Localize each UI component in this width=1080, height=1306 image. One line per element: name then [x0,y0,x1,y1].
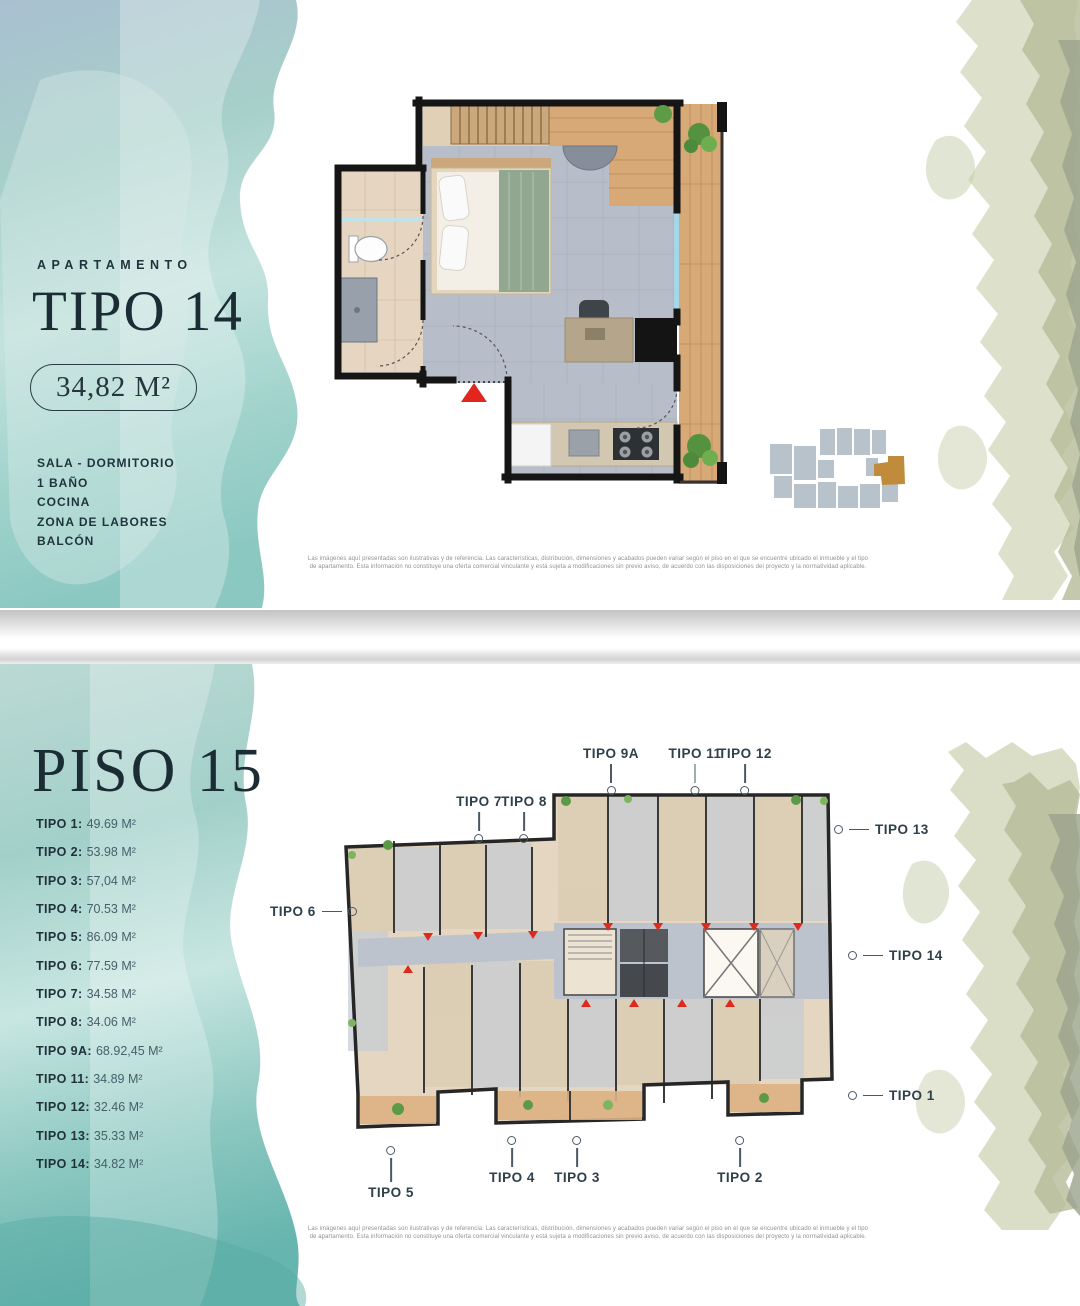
leader-dot-icon [386,1146,395,1155]
unit-area: 70.53 M² [87,902,136,916]
unit-area: 34.58 M² [87,987,136,1001]
list-item: TIPO 5:86.09 M² [36,930,163,958]
leader-dot-icon [474,834,483,843]
leader-line [576,1148,577,1167]
unit-label: TIPO 6: [36,959,83,973]
unit-area: 32.46 M² [94,1100,143,1114]
unit-area: 34.06 M² [87,1015,136,1029]
leader-line [694,764,695,783]
bed-icon [431,158,551,294]
list-item: TIPO 2:53.98 M² [36,845,163,873]
sink-icon [569,430,599,456]
leader-dot-icon [348,907,357,916]
locator-highlighted-unit [874,456,905,485]
plan-callout-tipo14: TIPO 14 [848,948,943,963]
glass-partition [337,218,421,221]
unit-label: TIPO 9A: [36,1044,92,1058]
list-item: TIPO 4:70.53 M² [36,902,163,930]
elevator-core [704,929,794,997]
leader-line [849,829,869,830]
unit-area-list: TIPO 1:49.69 M² TIPO 2:53.98 M² TIPO 3:5… [36,817,163,1185]
unit-label: TIPO 1: [36,817,83,831]
leader-dot-icon [606,786,615,795]
leader-dot-icon [691,786,700,795]
callout-label: TIPO 5 [368,1185,414,1200]
brochure-page: { "top_panel": { "eyebrow": "APARTAMENTO… [0,0,1080,1306]
callout-label: TIPO 2 [717,1170,763,1185]
unit-area: 53.98 M² [87,845,136,859]
panel1-title: TIPO 14 [32,283,244,340]
list-item: TIPO 14:34.82 M² [36,1157,163,1185]
unit-label: TIPO 4: [36,902,83,916]
plan-callout-tipo1: TIPO 1 [848,1088,935,1103]
callout-label: TIPO 14 [889,948,943,963]
leader-dot-icon [741,786,750,795]
unit-label: TIPO 8: [36,1015,83,1029]
leader-line [390,1158,391,1182]
leader-line [523,812,524,831]
unit-area: 68.92,45 M² [96,1044,163,1058]
leader-line [511,1148,512,1167]
plan-callout-tipo4: TIPO 4 [489,1136,535,1185]
stairs [564,929,616,995]
tipo14-sheet: APARTAMENTO TIPO 14 34,82 M² SALA - DORM… [0,0,1080,612]
callout-label: TIPO 6 [270,904,316,919]
leader-dot-icon [572,1136,581,1145]
leader-line [610,764,611,783]
unit-label: TIPO 12: [36,1100,90,1114]
unit-area: 86.09 M² [87,930,136,944]
list-item: TIPO 3:57,04 M² [36,874,163,902]
list-item: TIPO 9A:68.92,45 M² [36,1044,163,1072]
unit-area: 77.59 M² [87,959,136,973]
leader-dot-icon [735,1136,744,1145]
unit-label: TIPO 5: [36,930,83,944]
service-shaft [635,318,677,362]
leader-line [739,1148,740,1167]
callout-label: TIPO 8 [501,794,547,809]
plan-callout-tipo3: TIPO 3 [554,1136,600,1185]
window-glass [674,212,680,310]
callout-label: TIPO 13 [875,822,929,837]
list-item: TIPO 13:35.33 M² [36,1129,163,1157]
unit-label: TIPO 7: [36,987,83,1001]
callout-label: TIPO 7 [456,794,502,809]
leader-line [744,764,745,783]
piso15-floorplan-image [328,783,876,1153]
list-item: TIPO 1:49.69 M² [36,817,163,845]
fridge-icon [511,424,551,466]
panel2-title: PISO 15 [32,740,265,802]
callout-label: TIPO 12 [718,746,772,761]
leader-line [863,1095,883,1096]
callout-label: TIPO 9A [583,746,639,761]
leader-dot-icon [519,834,528,843]
feature-item: SALA - DORMITORIO [37,454,175,474]
plan-callout-tipo7: TIPO 7 [456,794,502,843]
wall-stub [717,102,727,132]
leader-dot-icon [848,1091,857,1100]
toilet-icon [349,236,387,262]
panel1-eyebrow: APARTAMENTO [37,258,193,272]
entrance-marker-icon [461,383,487,402]
unit-locator-map [762,424,912,514]
unit-area: 57,04 M² [87,874,136,888]
olive-watercolor-art [852,664,1080,1306]
bathroom [335,170,423,372]
callout-label: TIPO 3 [554,1170,600,1185]
unit-area: 35.33 M² [94,1129,143,1143]
kitchen-counter [509,422,677,466]
plan-callout-tipo13: TIPO 13 [834,822,929,837]
unit-label: TIPO 3: [36,874,83,888]
leader-dot-icon [507,1136,516,1145]
unit-area: 34.89 M² [93,1072,142,1086]
wardrobe [423,102,549,146]
feature-item: BALCÓN [37,532,175,552]
plan-callout-tipo8: TIPO 8 [501,794,547,843]
callout-label: TIPO 11 [668,746,721,761]
callout-label: TIPO 1 [889,1088,935,1103]
plan-callout-tipo9a: TIPO 9A [583,746,639,795]
unit-label: TIPO 14: [36,1157,90,1171]
leader-dot-icon [834,825,843,834]
leader-line [478,812,479,831]
unit-area: 34.82 M² [94,1157,143,1171]
page-gap-shadow [0,648,1080,664]
leader-line [863,955,883,956]
page-gap-shadow [0,610,1080,638]
list-item: TIPO 12:32.46 M² [36,1100,163,1128]
balcony-deck [679,104,723,484]
disclaimer-text: Las imágenes aquí presentadas son ilustr… [304,1226,872,1241]
area-badge: 34,82 M² [30,364,197,411]
unit-label: TIPO 13: [36,1129,90,1143]
list-item: TIPO 6:77.59 M² [36,959,163,987]
feature-item: 1 BAÑO [37,474,175,494]
plan-callout-tipo11: TIPO 11 [668,746,721,795]
feature-item: ZONA DE LABORES [37,513,175,533]
plan-callout-tipo5: TIPO 5 [368,1146,414,1200]
unit-label: TIPO 11: [36,1072,89,1086]
plan-callout-tipo12: TIPO 12 [718,746,772,795]
list-item: TIPO 11:34.89 M² [36,1072,163,1100]
leader-dot-icon [848,951,857,960]
wall-stub [717,462,727,484]
list-item: TIPO 7:34.58 M² [36,987,163,1015]
stove-icon [613,428,659,460]
olive-watercolor-art [852,0,1080,608]
unit-label: TIPO 2: [36,845,83,859]
tipo14-floorplan-image [313,88,733,498]
piso15-sheet: PISO 15 TIPO 1:49.69 M² TIPO 2:53.98 M² … [0,664,1080,1306]
unit-area: 49.69 M² [87,817,136,831]
disclaimer-text: Las imágenes aquí presentadas son ilustr… [304,556,872,571]
list-item: TIPO 8:34.06 M² [36,1015,163,1043]
plan-callout-tipo2: TIPO 2 [717,1136,763,1185]
feature-item: COCINA [37,493,175,513]
leader-line [322,911,342,912]
callout-label: TIPO 4 [489,1170,535,1185]
plan-callout-tipo6: TIPO 6 [270,904,357,919]
feature-list: SALA - DORMITORIO 1 BAÑO COCINA ZONA DE … [37,454,175,552]
